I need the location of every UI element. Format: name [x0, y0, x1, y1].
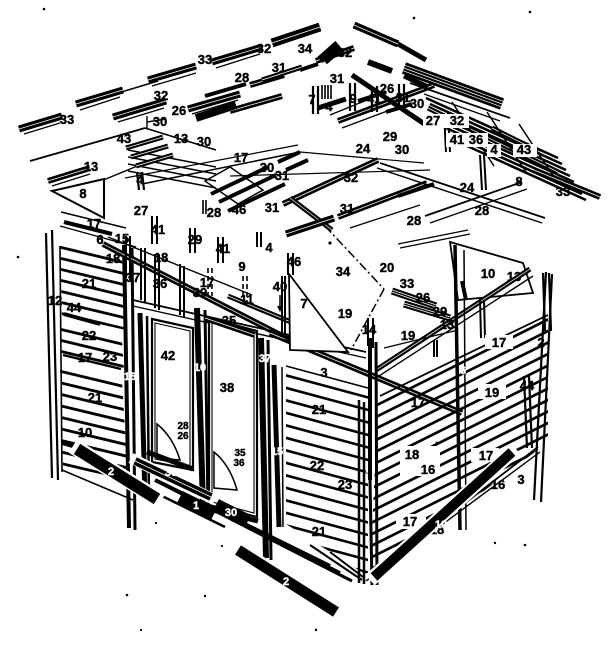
svg-text:4: 4	[136, 172, 144, 187]
svg-text:23: 23	[103, 349, 117, 364]
svg-text:18: 18	[106, 251, 120, 266]
svg-text:13: 13	[84, 159, 98, 174]
svg-text:31: 31	[265, 200, 279, 215]
svg-text:17: 17	[492, 335, 506, 350]
svg-text:37: 37	[126, 270, 140, 285]
svg-text:7: 7	[308, 92, 315, 107]
svg-text:43: 43	[117, 131, 131, 146]
svg-text:26: 26	[172, 103, 186, 118]
svg-text:3: 3	[517, 472, 524, 487]
svg-text:26: 26	[416, 290, 430, 305]
svg-text:30: 30	[197, 134, 211, 149]
svg-text:41: 41	[151, 222, 165, 237]
svg-text:30: 30	[260, 160, 274, 175]
svg-text:15: 15	[115, 231, 129, 246]
svg-text:33: 33	[60, 112, 74, 127]
svg-text:19: 19	[485, 385, 499, 400]
svg-text:4: 4	[265, 240, 273, 255]
svg-text:34: 34	[336, 264, 351, 279]
svg-text:31: 31	[330, 71, 344, 86]
svg-text:9: 9	[349, 91, 356, 106]
svg-text:31: 31	[340, 201, 354, 216]
svg-text:13: 13	[440, 317, 454, 332]
svg-text:18: 18	[154, 250, 168, 265]
svg-text:32: 32	[154, 88, 168, 103]
svg-text:17: 17	[403, 514, 417, 529]
svg-text:28: 28	[235, 70, 249, 85]
svg-text:2: 2	[283, 576, 289, 588]
svg-text:10: 10	[481, 266, 495, 281]
svg-text:4: 4	[490, 142, 498, 157]
svg-text:33: 33	[556, 184, 570, 199]
svg-text:36: 36	[153, 276, 167, 291]
svg-text:10: 10	[78, 425, 92, 440]
svg-text:6: 6	[460, 365, 466, 377]
svg-text:2: 2	[108, 466, 114, 478]
svg-text:7: 7	[300, 296, 307, 311]
svg-text:26: 26	[177, 431, 189, 442]
svg-text:36: 36	[469, 132, 483, 147]
svg-text:17: 17	[78, 350, 92, 365]
svg-text:20: 20	[380, 260, 394, 275]
svg-text:31: 31	[275, 168, 289, 183]
svg-text:44: 44	[520, 378, 535, 393]
svg-text:10: 10	[194, 362, 206, 374]
svg-text:27: 27	[426, 113, 440, 128]
svg-text:43: 43	[517, 142, 531, 157]
svg-text:22: 22	[310, 458, 324, 473]
svg-text:15: 15	[271, 446, 283, 458]
svg-text:30: 30	[225, 507, 237, 519]
svg-text:30: 30	[165, 467, 177, 479]
svg-text:17: 17	[234, 150, 248, 165]
svg-text:16: 16	[124, 371, 136, 383]
svg-text:37: 37	[259, 353, 271, 365]
svg-text:1: 1	[193, 500, 199, 512]
svg-text:41: 41	[216, 241, 230, 256]
svg-text:17: 17	[411, 395, 425, 410]
svg-text:9: 9	[238, 259, 245, 274]
svg-text:30: 30	[395, 142, 409, 157]
svg-text:28: 28	[407, 213, 421, 228]
svg-text:14: 14	[362, 322, 377, 337]
svg-text:41: 41	[367, 91, 381, 106]
svg-text:6: 6	[96, 232, 103, 247]
svg-text:32: 32	[257, 41, 271, 56]
svg-text:44: 44	[67, 300, 82, 315]
svg-text:21: 21	[88, 390, 102, 405]
svg-text:34: 34	[298, 41, 313, 56]
svg-text:19: 19	[338, 306, 352, 321]
svg-text:32: 32	[338, 45, 352, 60]
svg-text:16: 16	[491, 477, 505, 492]
svg-text:24: 24	[356, 141, 371, 156]
svg-text:36: 36	[233, 458, 245, 469]
svg-text:31: 31	[396, 90, 410, 105]
svg-text:10: 10	[435, 519, 447, 531]
svg-text:46: 46	[232, 202, 246, 217]
svg-text:31: 31	[272, 60, 286, 75]
svg-text:27: 27	[134, 203, 148, 218]
svg-text:21: 21	[82, 276, 96, 291]
svg-text:17: 17	[479, 448, 493, 463]
svg-text:23: 23	[338, 477, 352, 492]
svg-text:30: 30	[153, 114, 167, 129]
svg-text:18: 18	[405, 447, 419, 462]
svg-text:33: 33	[400, 276, 414, 291]
svg-text:21: 21	[312, 524, 326, 539]
svg-text:22: 22	[82, 328, 96, 343]
svg-text:42: 42	[161, 348, 175, 363]
svg-text:4: 4	[325, 99, 333, 114]
svg-text:13: 13	[174, 131, 188, 146]
svg-text:30: 30	[410, 96, 424, 111]
svg-text:41: 41	[450, 132, 464, 147]
svg-text:40: 40	[273, 279, 287, 294]
svg-text:32: 32	[450, 113, 464, 128]
svg-text:28: 28	[207, 205, 221, 220]
svg-text:8: 8	[79, 186, 86, 201]
svg-text:3: 3	[320, 365, 327, 380]
svg-text:16: 16	[421, 462, 435, 477]
svg-text:21: 21	[312, 402, 326, 417]
svg-text:33: 33	[198, 52, 212, 67]
svg-text:38: 38	[220, 380, 234, 395]
svg-text:32: 32	[344, 170, 358, 185]
svg-text:26: 26	[380, 81, 394, 96]
